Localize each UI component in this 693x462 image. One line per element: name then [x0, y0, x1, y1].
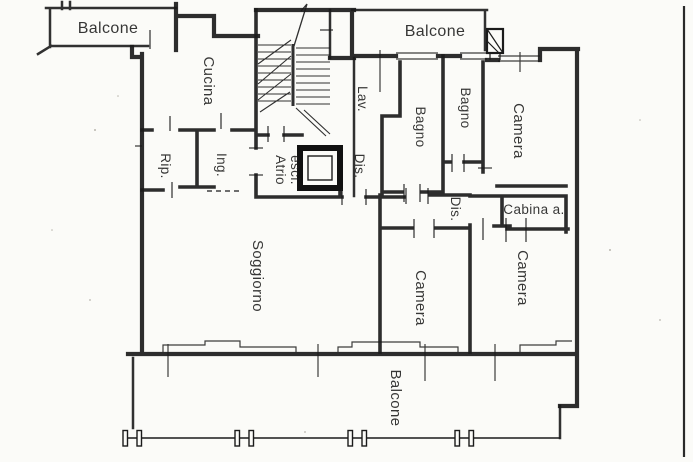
railing-post [348, 431, 353, 447]
speckle [659, 319, 661, 321]
staircase [258, 4, 333, 136]
room-label-dis-1: Dis. [352, 154, 367, 179]
window-center-ticks [168, 344, 495, 381]
railing-post [235, 431, 240, 447]
room-label-lav: Lav. [355, 86, 370, 112]
speckle [304, 431, 306, 433]
door-jamb-ticks [135, 30, 526, 242]
speckle [89, 299, 91, 301]
speckle [639, 119, 641, 121]
balcony-bottom-railing [123, 431, 560, 447]
room-label-cucina: Cucina [200, 56, 217, 105]
room-label-balcone-top-right: Balcone [405, 23, 466, 40]
floor-plan-drawing: Balcone Balcone Cucina Lav. Dis. Bagno B… [0, 0, 693, 462]
room-label-cabina: Cabina a. [503, 202, 564, 217]
room-label-camera-bottom-center: Camera [412, 270, 429, 326]
room-label-balcone-bottom: Balcone [387, 369, 404, 426]
shaft-hatch-lines [487, 29, 503, 60]
railing-post [137, 431, 142, 447]
room-labels: Balcone Balcone Cucina Lav. Dis. Bagno B… [78, 20, 565, 427]
room-label-ing: Ing. [214, 153, 229, 177]
room-label-balcone-top-left: Balcone [78, 20, 139, 37]
railing-post [249, 431, 254, 447]
room-label-bagno-2: Bagno [458, 87, 473, 128]
room-label-soggiorno: Soggiorno [249, 240, 266, 312]
room-label-atrio-line2: escl. [288, 155, 303, 185]
speckle [51, 229, 53, 231]
elevator-shaft-wall [300, 148, 340, 188]
room-label-bagno-1: Bagno [413, 106, 428, 147]
speckle [117, 95, 119, 97]
speckle [94, 129, 96, 131]
room-label-dis-2: Dis. [448, 197, 463, 222]
window-sills-bottom [163, 341, 572, 352]
elevator [300, 148, 340, 188]
room-label-rip: Rip. [158, 153, 173, 179]
room-label-camera-top-right: Camera [510, 103, 527, 159]
railing-post [362, 431, 367, 447]
railing-post [123, 431, 128, 447]
room-label-atrio-line1: Atrio [273, 155, 288, 185]
floor-plan-page: Balcone Balcone Cucina Lav. Dis. Bagno B… [0, 0, 693, 462]
railing-post [469, 431, 474, 447]
railing-post [455, 431, 460, 447]
speckle [609, 249, 611, 251]
shaft-hatched-box [487, 29, 503, 60]
elevator-cab [308, 156, 332, 180]
room-label-camera-bottom-right: Camera [514, 250, 531, 306]
